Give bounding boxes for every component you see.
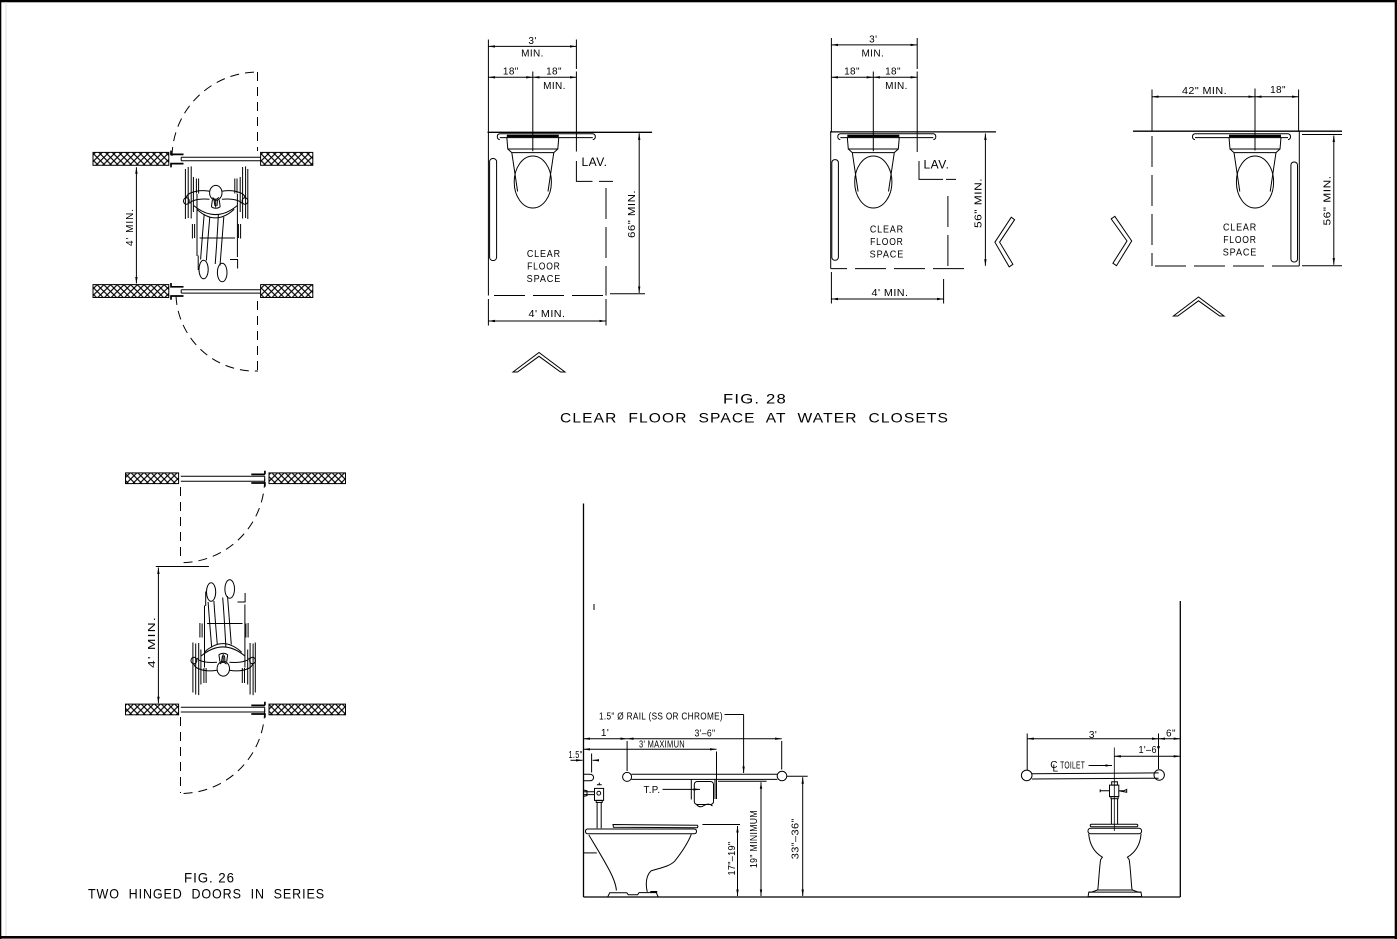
svg-text:42" MIN.: 42" MIN. [1182, 86, 1227, 97]
svg-text:4' MIN.: 4' MIN. [872, 288, 909, 299]
svg-text:CLEAR: CLEAR [1223, 222, 1257, 234]
svg-text:19" MINIMUM: 19" MINIMUM [749, 810, 760, 868]
svg-text:MIN.: MIN. [543, 81, 566, 92]
svg-text:SPACE: SPACE [870, 249, 905, 261]
svg-text:56" MIN.: 56" MIN. [974, 178, 985, 228]
svg-text:MIN.: MIN. [861, 48, 884, 59]
svg-text:TWO HINGED DOORS IN SERIES: TWO HINGED DOORS IN SERIES [88, 886, 325, 902]
svg-text:CLEAR: CLEAR [527, 248, 561, 260]
svg-text:6": 6" [1166, 728, 1176, 739]
svg-text:1.5" Ø RAIL (SS OR CHROME): 1.5" Ø RAIL (SS OR CHROME) [599, 711, 723, 722]
svg-text:MIN.: MIN. [885, 81, 908, 92]
svg-text:3': 3' [528, 36, 536, 47]
svg-text:LAV.: LAV. [923, 158, 949, 172]
svg-text:TOILET: TOILET [1060, 760, 1085, 771]
svg-text:3' MAXIMUN: 3' MAXIMUN [639, 739, 685, 750]
svg-text:4' MIN.: 4' MIN. [529, 309, 566, 320]
svg-text:66" MIN.: 66" MIN. [627, 190, 638, 238]
svg-text:3': 3' [869, 35, 877, 46]
svg-text:1': 1' [601, 728, 609, 739]
svg-text:18": 18" [503, 66, 519, 77]
svg-text:3': 3' [1089, 730, 1097, 741]
svg-text:18": 18" [1270, 85, 1286, 96]
svg-text:18": 18" [546, 66, 562, 77]
svg-text:18": 18" [885, 66, 901, 77]
svg-text:33"–36": 33"–36" [791, 818, 802, 859]
svg-text:FLOOR: FLOOR [527, 261, 561, 273]
svg-text:T.P.: T.P. [644, 785, 661, 796]
svg-text:FIG. 28: FIG. 28 [723, 391, 787, 407]
svg-text:LAV.: LAV. [581, 155, 607, 169]
svg-text:CLEAR FLOOR SPACE AT WATER: CLEAR FLOOR SPACE AT WATER CLOSETS [560, 410, 949, 426]
svg-text:CLEAR: CLEAR [870, 224, 904, 236]
svg-text:17"–19": 17"–19" [727, 841, 738, 875]
svg-text:FLOOR: FLOOR [870, 236, 904, 248]
svg-text:SPACE: SPACE [527, 273, 562, 285]
svg-text:4' MIN.: 4' MIN. [146, 616, 158, 668]
svg-text:3'–6": 3'–6" [695, 729, 716, 740]
svg-text:1'–6": 1'–6" [1139, 745, 1161, 756]
svg-text:MIN.: MIN. [521, 49, 544, 60]
svg-text:1.5": 1.5" [569, 750, 583, 761]
svg-text:18": 18" [844, 66, 860, 77]
svg-text:4' MIN.: 4' MIN. [124, 208, 136, 246]
svg-text:FIG. 26: FIG. 26 [184, 870, 235, 886]
svg-text:SPACE: SPACE [1223, 247, 1258, 259]
svg-text:FLOOR: FLOOR [1223, 234, 1257, 246]
svg-text:L: L [1053, 763, 1059, 774]
svg-text:56" MIN.: 56" MIN. [1323, 176, 1334, 226]
